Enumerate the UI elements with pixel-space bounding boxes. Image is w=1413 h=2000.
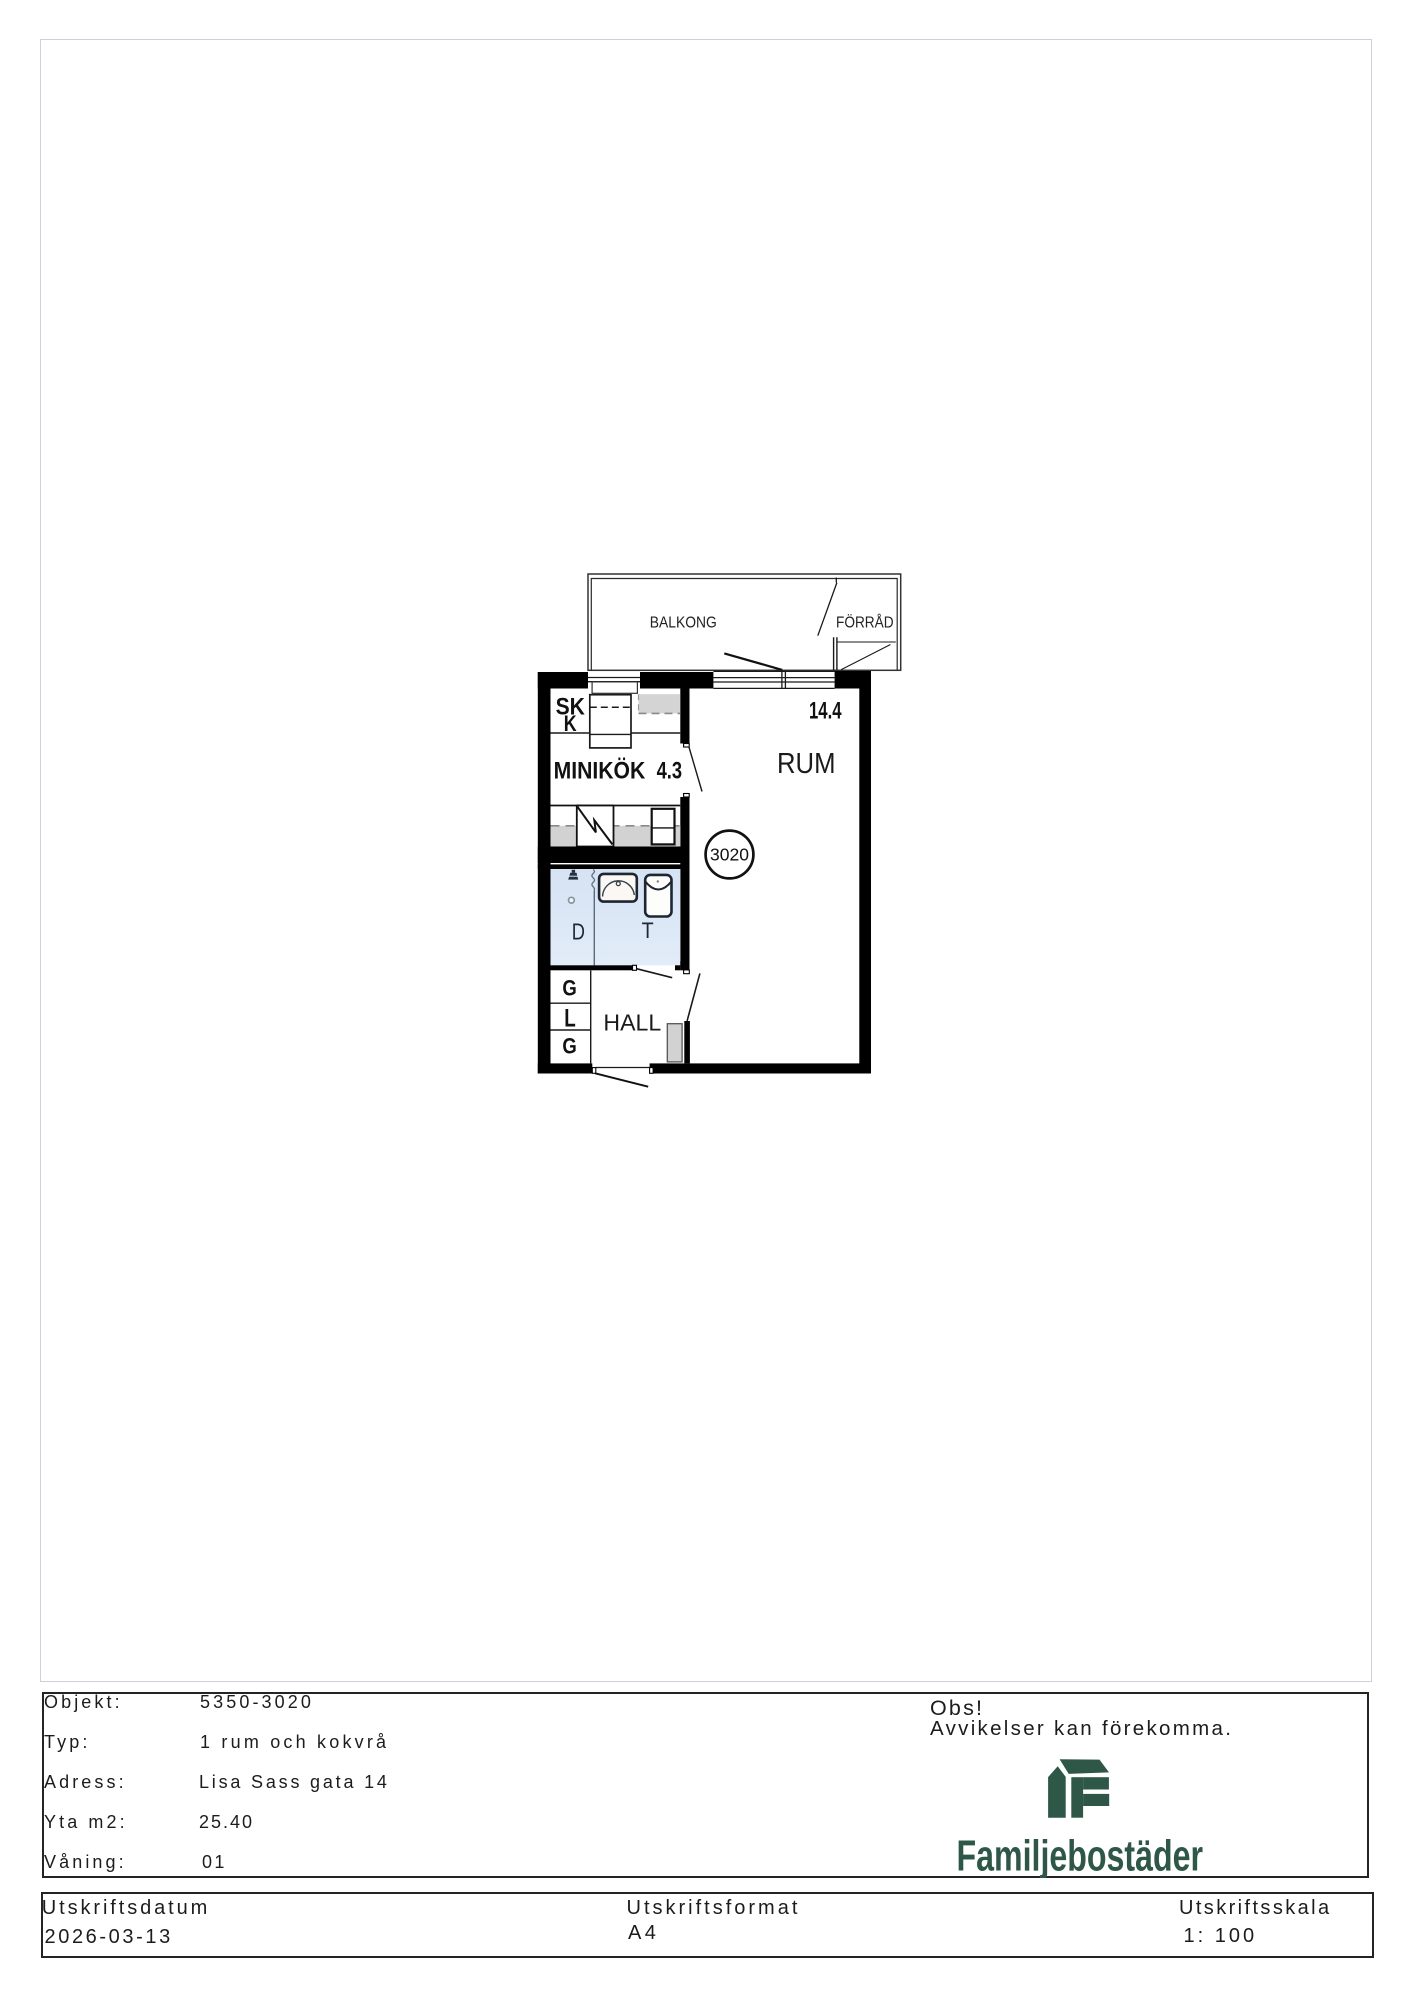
svg-text:G: G [562,1033,576,1058]
svg-text:D: D [572,918,585,944]
svg-text:L: L [564,1004,576,1032]
svg-text:HALL: HALL [603,1010,661,1036]
svg-text:T: T [642,918,654,943]
svg-text:G: G [562,975,576,1000]
svg-text:3020: 3020 [710,845,749,865]
svg-text:K: K [564,711,577,736]
svg-text:RUM: RUM [777,748,836,780]
svg-text:14.4: 14.4 [809,697,842,724]
svg-text:BALKONG: BALKONG [650,614,717,631]
svg-text:4.3: 4.3 [657,758,683,785]
svg-text:Familjebostäder: Familjebostäder [957,1832,1204,1879]
svg-text:MINIKÖK: MINIKÖK [554,758,646,785]
svg-text:FÖRRÅD: FÖRRÅD [836,613,894,632]
